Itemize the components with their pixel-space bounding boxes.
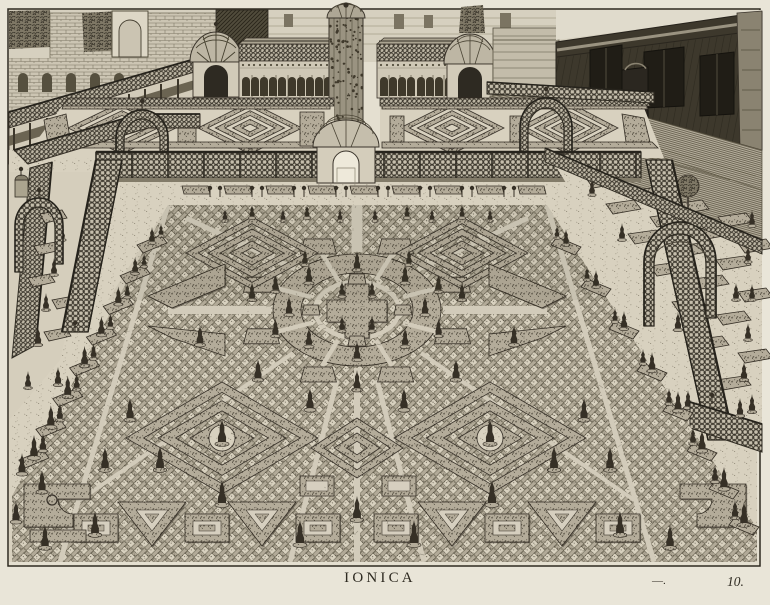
svg-text:—.: —. [651,575,666,587]
svg-text:10.: 10. [727,574,744,589]
svg-text:IONICA: IONICA [344,570,416,586]
